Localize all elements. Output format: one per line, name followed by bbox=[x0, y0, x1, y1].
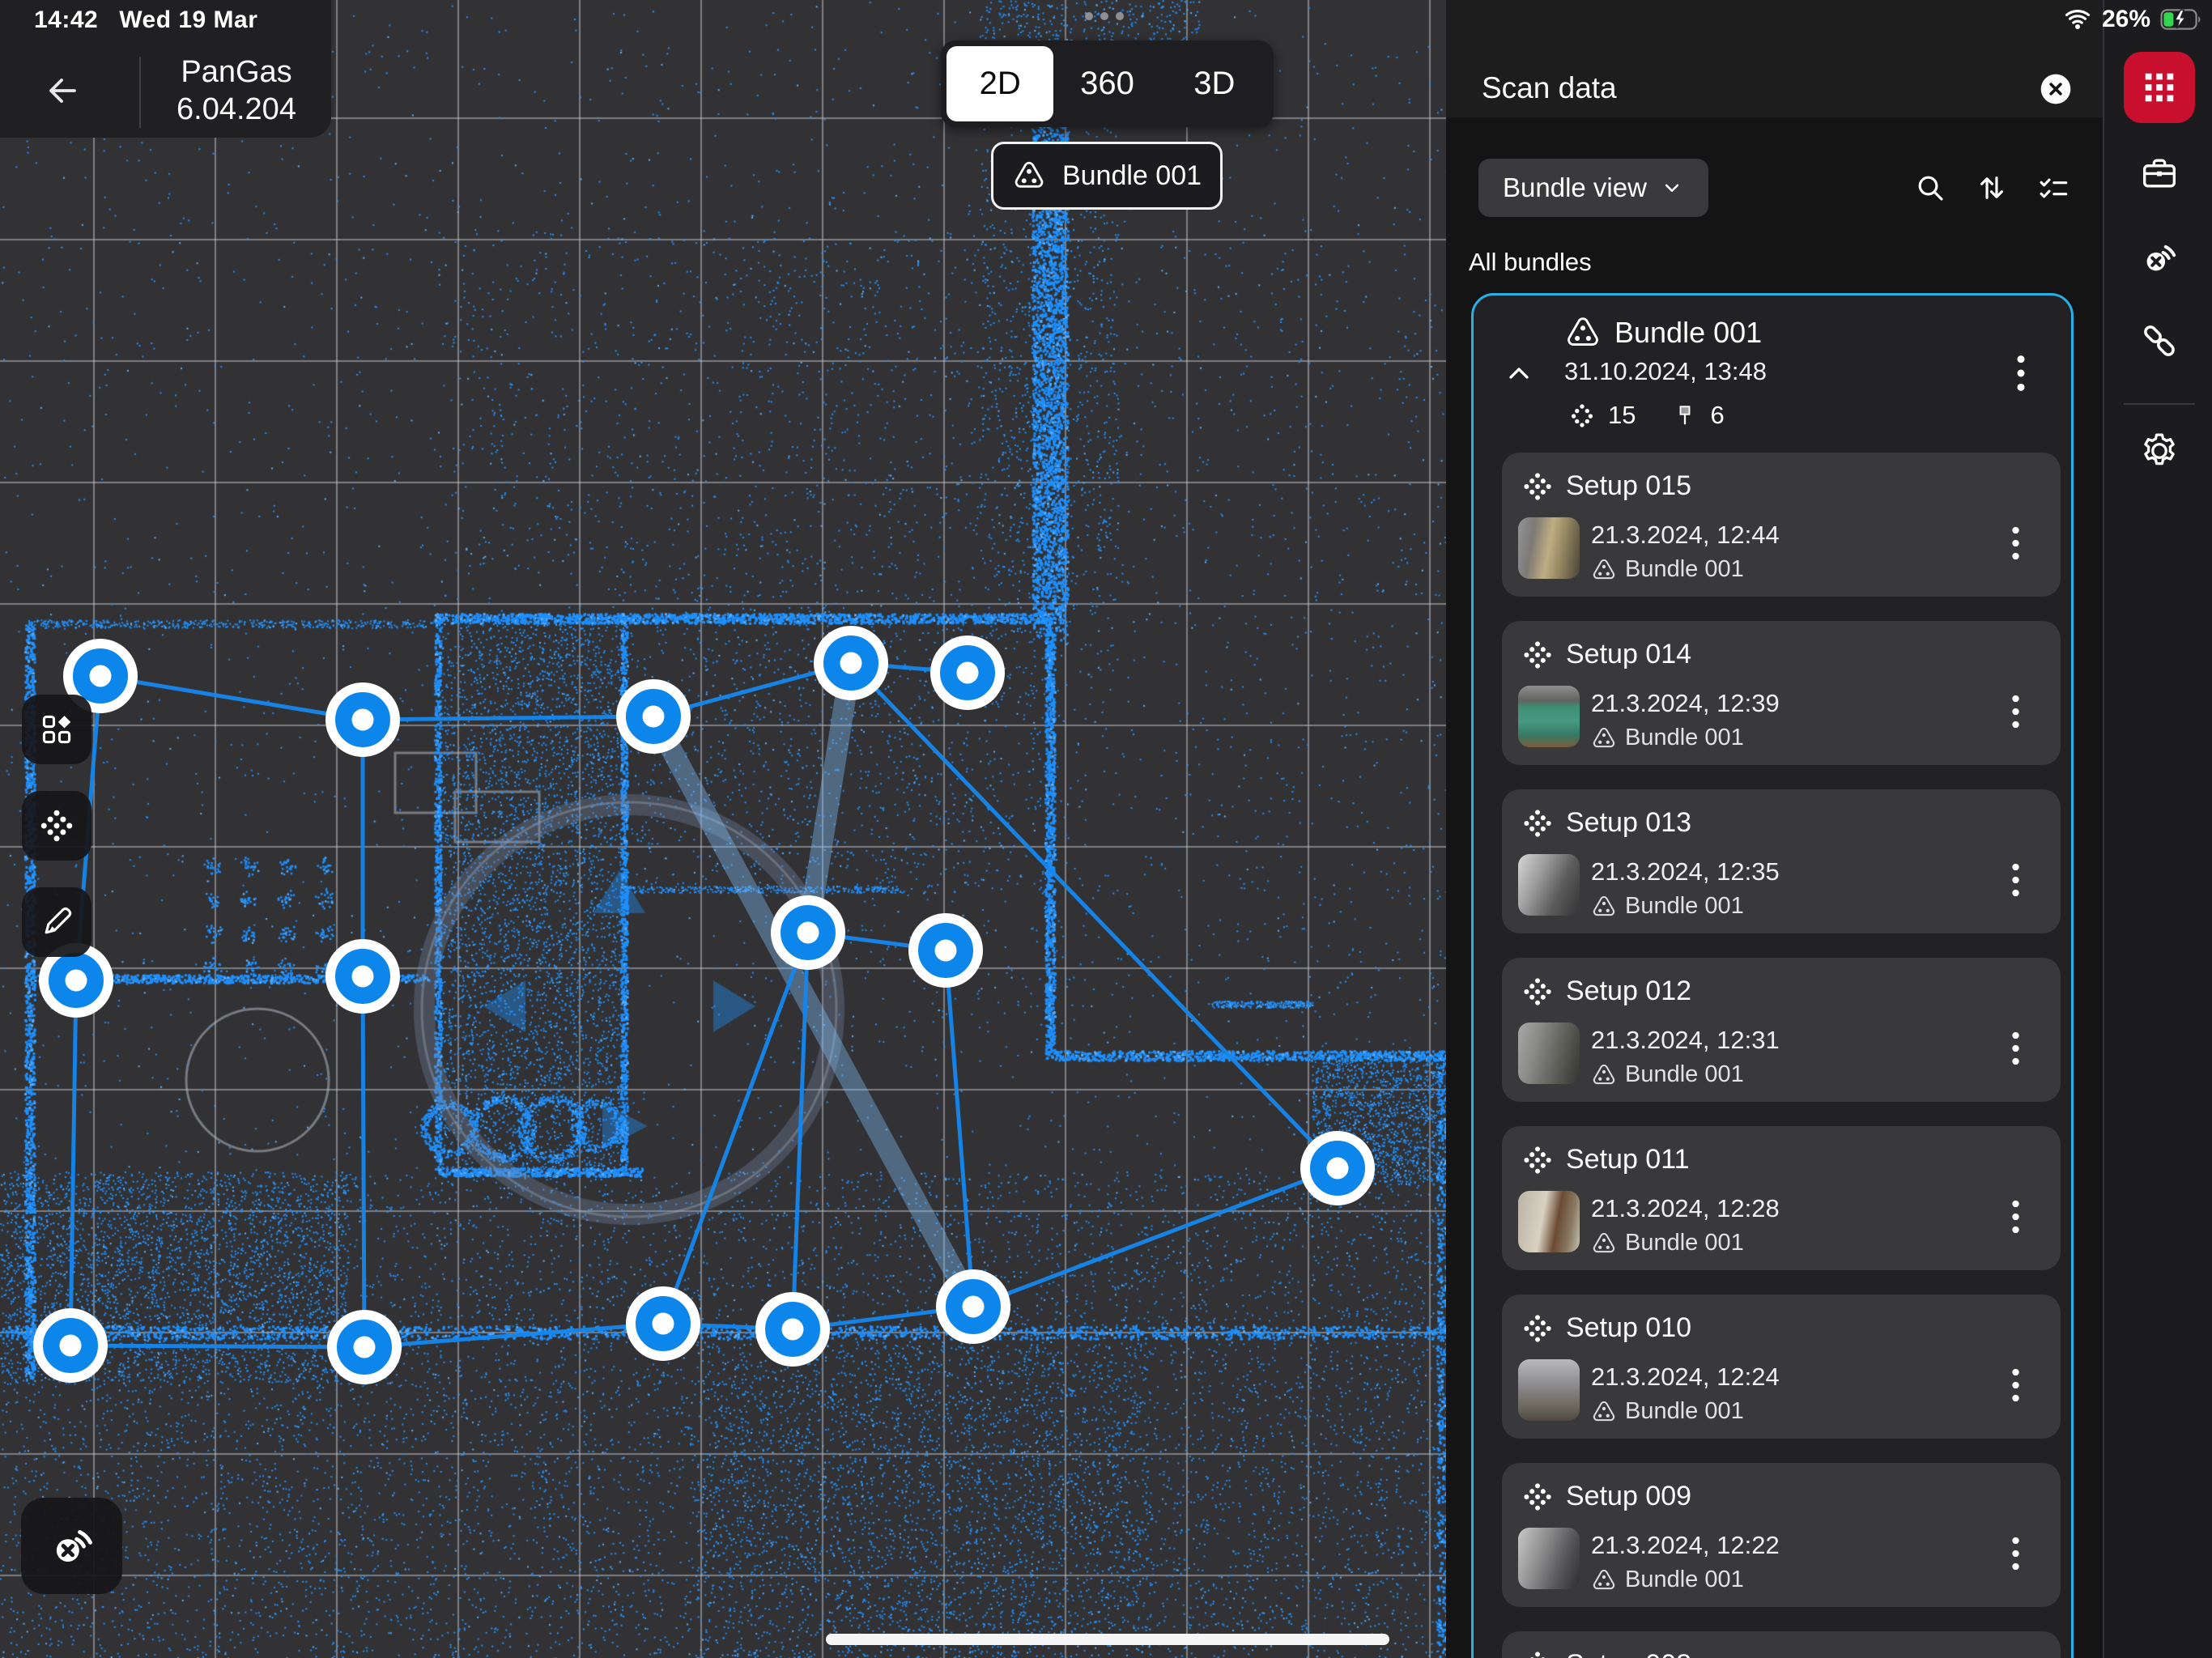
bundle-icon bbox=[1591, 1567, 1617, 1593]
bundle-icon bbox=[1591, 894, 1617, 920]
setup-name: Setup 012 bbox=[1566, 976, 1691, 1007]
battery-percent: 26% bbox=[2102, 6, 2150, 33]
scalpel-icon bbox=[39, 904, 74, 940]
bundle-pin-count: 6 bbox=[1710, 401, 1724, 430]
setup-bundle-name: Bundle 001 bbox=[1625, 725, 1744, 751]
setup-bundle-name: Bundle 001 bbox=[1625, 893, 1744, 920]
setup-icon bbox=[1522, 471, 1553, 502]
tab-2d[interactable]: 2D bbox=[946, 46, 1053, 121]
close-icon bbox=[2038, 71, 2074, 107]
setup-marker[interactable] bbox=[941, 1274, 1006, 1339]
bundle-icon bbox=[1012, 159, 1046, 193]
active-bundle-button[interactable]: Bundle 001 bbox=[991, 142, 1223, 210]
top-left-bar: 14:42 Wed 19 Mar PanGas 6.04.204 bbox=[0, 0, 331, 138]
panel-header: Scan data bbox=[1446, 0, 2103, 117]
setup-name: Setup 014 bbox=[1566, 639, 1691, 670]
bundle-icon bbox=[1591, 1231, 1617, 1256]
setup-list: Setup 015 21.3.2024, 12:44 Bundle 001 bbox=[1502, 453, 2061, 1658]
kebab-icon bbox=[2010, 692, 2021, 731]
kebab-icon bbox=[2010, 1197, 2021, 1236]
setup-thumbnail[interactable] bbox=[1518, 686, 1580, 747]
divider bbox=[2124, 403, 2195, 405]
setup-marker[interactable] bbox=[1305, 1136, 1370, 1201]
divider bbox=[139, 57, 141, 128]
setup-bundle-name: Bundle 001 bbox=[1625, 1567, 1744, 1593]
setup-card[interactable]: Setup 012 21.3.2024, 12:31 Bundle 001 bbox=[1502, 958, 2061, 1102]
bundle-menu-button[interactable] bbox=[2003, 349, 2039, 397]
setup-icon bbox=[1522, 1313, 1553, 1344]
filter-checklist-icon[interactable] bbox=[2036, 171, 2070, 205]
link-icon bbox=[2139, 321, 2180, 361]
setup-card[interactable]: Setup 013 21.3.2024, 12:35 Bundle 001 bbox=[1502, 789, 2061, 933]
project-version: 6.04.204 bbox=[154, 91, 319, 128]
kebab-icon bbox=[2010, 861, 2021, 899]
toolbox-rail-button[interactable] bbox=[2104, 153, 2212, 193]
setup-markers-overlay[interactable] bbox=[0, 0, 1446, 1658]
briefcase-icon bbox=[2139, 153, 2180, 193]
setup-menu-button[interactable] bbox=[1997, 1024, 2033, 1073]
setup-icon bbox=[1522, 1482, 1553, 1512]
setup-card[interactable]: Setup 009 21.3.2024, 12:22 Bundle 001 bbox=[1502, 1463, 2061, 1607]
scanner-status-rail-button[interactable] bbox=[2104, 238, 2212, 278]
wifi-icon bbox=[2063, 5, 2092, 34]
gear-icon bbox=[2138, 430, 2180, 472]
setup-marker[interactable] bbox=[621, 684, 686, 749]
setup-name: Setup 015 bbox=[1566, 470, 1691, 502]
view-selector-dropdown[interactable]: Bundle view bbox=[1478, 159, 1708, 217]
kebab-icon bbox=[2010, 1029, 2021, 1068]
status-date: Wed 19 Mar bbox=[119, 6, 257, 34]
cut-tool-button[interactable] bbox=[22, 887, 91, 957]
tab-3d[interactable]: 3D bbox=[1161, 46, 1268, 121]
home-indicator[interactable] bbox=[826, 1634, 1389, 1645]
setup-bundle-name: Bundle 001 bbox=[1625, 1398, 1744, 1425]
kebab-icon bbox=[2010, 1534, 2021, 1573]
setup-name: Setup 013 bbox=[1566, 807, 1691, 839]
setup-date: 21.3.2024, 12:44 bbox=[1591, 521, 1780, 550]
setup-marker[interactable] bbox=[44, 948, 108, 1013]
setup-name: Setup 010 bbox=[1566, 1312, 1691, 1344]
kebab-icon bbox=[2015, 352, 2027, 394]
setup-menu-button[interactable] bbox=[1997, 1192, 2033, 1241]
active-bundle-label: Bundle 001 bbox=[1062, 160, 1202, 192]
panel-title: Scan data bbox=[1482, 71, 1617, 105]
multitask-handle[interactable] bbox=[1085, 12, 1124, 20]
view-selector-label: Bundle view bbox=[1503, 172, 1647, 203]
setup-menu-button[interactable] bbox=[1997, 856, 2033, 904]
bundle-date: 31.10.2024, 13:48 bbox=[1564, 357, 2071, 386]
scan-data-rail-button[interactable] bbox=[2124, 52, 2195, 123]
setup-date: 21.3.2024, 12:35 bbox=[1591, 857, 1780, 886]
bundle-icon bbox=[1591, 725, 1617, 751]
setup-bundle-tag: Bundle 001 bbox=[1591, 1230, 1744, 1256]
setup-marker[interactable] bbox=[332, 1315, 397, 1380]
setup-menu-button[interactable] bbox=[1997, 519, 2033, 568]
setup-thumbnail[interactable] bbox=[1518, 1528, 1580, 1589]
objects-icon bbox=[39, 712, 74, 747]
setup-card[interactable]: Setup 011 21.3.2024, 12:28 Bundle 001 bbox=[1502, 1126, 2061, 1270]
collapse-bundle-button[interactable] bbox=[1503, 357, 1535, 393]
view-mode-toggle: 2D 360 3D bbox=[941, 40, 1274, 127]
setup-marker[interactable] bbox=[330, 687, 395, 752]
section-label: All bundles bbox=[1469, 248, 1592, 277]
setup-name: Setup 009 bbox=[1566, 1481, 1691, 1512]
setup-card[interactable]: Setup 008 Bundle 001 bbox=[1502, 1631, 2061, 1658]
setup-thumbnail[interactable] bbox=[1518, 1022, 1580, 1084]
setup-bundle-tag: Bundle 001 bbox=[1591, 1398, 1744, 1425]
setup-bundle-tag: Bundle 001 bbox=[1591, 893, 1744, 920]
setups-tool-button[interactable] bbox=[22, 791, 91, 861]
setup-thumbnail[interactable] bbox=[1518, 1191, 1580, 1252]
setup-date: 21.3.2024, 12:39 bbox=[1591, 689, 1780, 718]
setup-menu-button[interactable] bbox=[1997, 1529, 2033, 1578]
setup-card[interactable]: Setup 010 21.3.2024, 12:24 Bundle 001 bbox=[1502, 1295, 2061, 1439]
setup-bundle-name: Bundle 001 bbox=[1625, 1230, 1744, 1256]
setup-icon bbox=[1522, 1650, 1553, 1658]
setup-thumbnail[interactable] bbox=[1518, 1359, 1580, 1421]
scanner-connect-button[interactable] bbox=[21, 1498, 122, 1594]
setup-date: 21.3.2024, 12:28 bbox=[1591, 1194, 1780, 1223]
setup-bundle-tag: Bundle 001 bbox=[1591, 725, 1744, 751]
objects-tool-button[interactable] bbox=[22, 695, 91, 764]
setup-date: 21.3.2024, 12:31 bbox=[1591, 1026, 1780, 1055]
battery-icon bbox=[2160, 7, 2202, 32]
bundle-icon bbox=[1591, 557, 1617, 583]
setup-card[interactable]: Setup 014 21.3.2024, 12:39 Bundle 001 bbox=[1502, 621, 2061, 765]
bundle-setup-count: 15 bbox=[1608, 401, 1636, 430]
setup-marker[interactable] bbox=[330, 944, 395, 1009]
setup-marker[interactable] bbox=[913, 918, 978, 983]
settings-rail-button[interactable] bbox=[2104, 430, 2212, 472]
grid-app-icon bbox=[2141, 69, 2178, 106]
setup-bundle-name: Bundle 001 bbox=[1625, 556, 1744, 583]
kebab-icon bbox=[2010, 524, 2021, 563]
setup-marker[interactable] bbox=[776, 900, 840, 965]
bundle-icon bbox=[1564, 314, 1602, 351]
setup-marker[interactable] bbox=[819, 631, 883, 695]
close-panel-button[interactable] bbox=[2038, 71, 2074, 107]
setup-bundle-tag: Bundle 001 bbox=[1591, 1061, 1744, 1088]
panel-controls: Bundle view bbox=[1478, 159, 2070, 217]
setup-points-icon bbox=[39, 808, 74, 844]
status-time: 14:42 bbox=[34, 6, 98, 34]
setup-marker[interactable] bbox=[38, 1313, 103, 1378]
setup-count-icon bbox=[1569, 402, 1595, 428]
bundle-stats: 15 6 bbox=[1569, 399, 2071, 432]
scan-data-panel: Scan data Bundle view bbox=[1446, 0, 2103, 1658]
back-button[interactable] bbox=[40, 70, 83, 112]
status-time-date: 14:42 Wed 19 Mar bbox=[34, 6, 257, 34]
bundle-icon bbox=[1591, 1062, 1617, 1088]
setup-marker[interactable] bbox=[760, 1297, 825, 1362]
setup-icon bbox=[1522, 1145, 1553, 1175]
map-toolbar bbox=[22, 695, 91, 957]
setup-thumbnail[interactable] bbox=[1518, 854, 1580, 916]
setup-name: Setup 011 bbox=[1566, 1144, 1690, 1175]
bundle-header[interactable]: Bundle 001 31.10.2024, 13:48 15 6 bbox=[1474, 295, 2071, 432]
bundle-group-card[interactable]: Bundle 001 31.10.2024, 13:48 15 6 bbox=[1471, 293, 2074, 1658]
setup-bundle-tag: Bundle 001 bbox=[1591, 556, 1744, 583]
scanner-disconnected-icon bbox=[2139, 238, 2180, 278]
project-name: PanGas bbox=[154, 53, 319, 91]
pin-count-icon bbox=[1673, 403, 1697, 427]
kebab-icon bbox=[2010, 1366, 2021, 1405]
links-rail-button[interactable] bbox=[2104, 321, 2212, 361]
setup-thumbnail[interactable] bbox=[1518, 517, 1580, 579]
chevron-up-icon bbox=[1503, 357, 1535, 389]
setup-menu-button[interactable] bbox=[1997, 687, 2033, 736]
setup-icon bbox=[1522, 976, 1553, 1007]
scanner-disconnected-icon bbox=[47, 1521, 97, 1571]
bundle-icon bbox=[1591, 1399, 1617, 1425]
setup-icon bbox=[1522, 808, 1553, 839]
map-canvas[interactable]: 14:42 Wed 19 Mar PanGas 6.04.204 2D 360 … bbox=[0, 0, 1446, 1658]
project-title: PanGas 6.04.204 bbox=[154, 53, 319, 128]
sort-icon[interactable] bbox=[1975, 171, 2009, 205]
setup-marker[interactable] bbox=[935, 640, 1000, 705]
chevron-down-icon bbox=[1660, 176, 1684, 200]
setup-marker[interactable] bbox=[631, 1291, 696, 1356]
status-right-cluster: 26% bbox=[2063, 5, 2202, 34]
tab-360[interactable]: 360 bbox=[1053, 46, 1160, 121]
setup-date: 21.3.2024, 12:22 bbox=[1591, 1531, 1780, 1560]
search-icon[interactable] bbox=[1913, 171, 1947, 205]
back-arrow-icon bbox=[42, 71, 81, 110]
setup-bundle-tag: Bundle 001 bbox=[1591, 1567, 1744, 1593]
setup-icon bbox=[1522, 640, 1553, 670]
setup-name: Setup 008 bbox=[1566, 1649, 1691, 1658]
setup-bundle-name: Bundle 001 bbox=[1625, 1061, 1744, 1088]
setup-menu-button[interactable] bbox=[1997, 1361, 2033, 1409]
setup-date: 21.3.2024, 12:24 bbox=[1591, 1363, 1780, 1392]
app-rail bbox=[2103, 0, 2212, 1658]
bundle-name: Bundle 001 bbox=[1614, 316, 1762, 350]
setup-card[interactable]: Setup 015 21.3.2024, 12:44 Bundle 001 bbox=[1502, 453, 2061, 597]
